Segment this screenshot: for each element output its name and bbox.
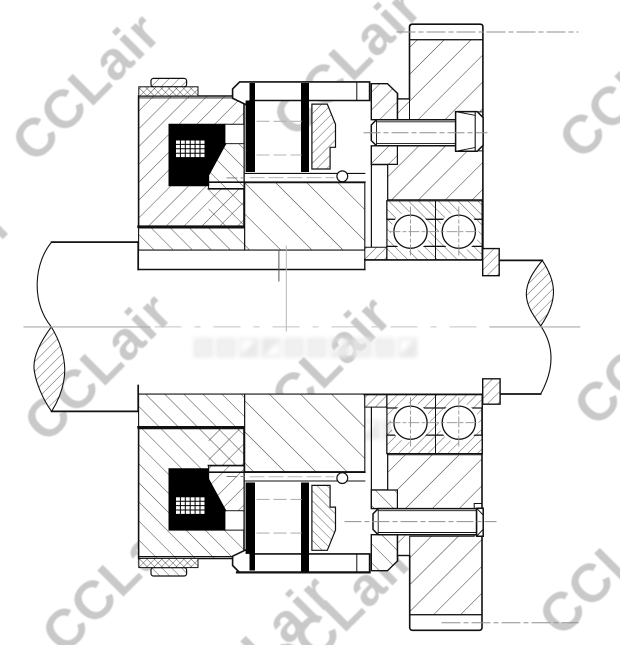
svg-text:▧▨◪◩▧▨◪▧▨◪: ▧▨◪◩▧▨◪▧▨◪	[192, 333, 419, 360]
